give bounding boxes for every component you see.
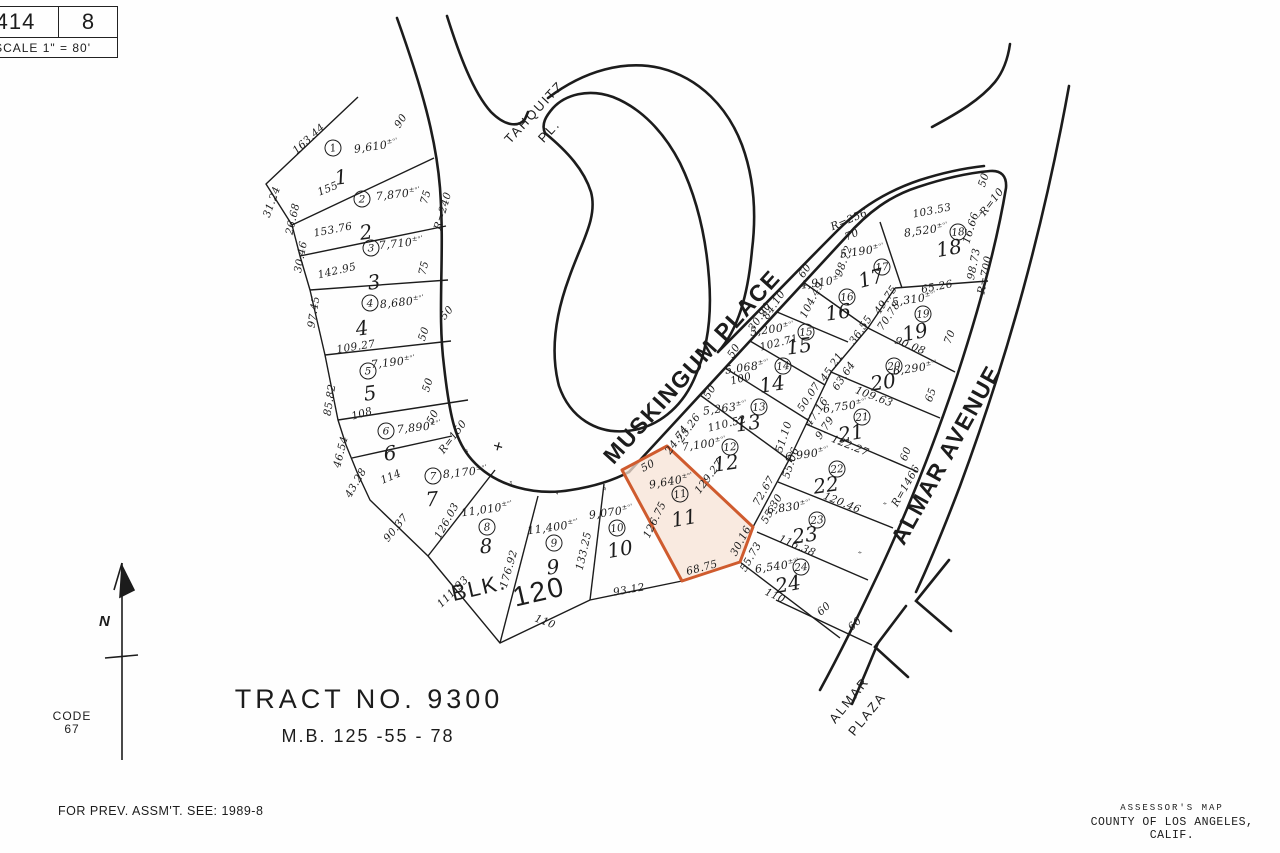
tax-code-area: CODE 67 [44, 710, 100, 736]
lot-number: 6 [382, 440, 398, 466]
north-arrow [105, 563, 138, 760]
code-value: 67 [44, 723, 100, 736]
county-label: COUNTY OF LOS ANGELES, CALIF. [1072, 816, 1272, 842]
north-label: N [99, 613, 110, 630]
lot-number: 18 [934, 234, 963, 262]
lot-number: 8 [479, 533, 494, 558]
road-almar-north-west-edge [932, 44, 1010, 127]
lot-circle-number: 6 [378, 423, 395, 440]
lot-number: 4 [354, 315, 370, 341]
road-tahquitz-east-edge [447, 16, 528, 124]
tract-title: TRACT NO. 9300 [234, 684, 504, 715]
map-book-number: 414 [0, 7, 59, 37]
map-scale-label: SCALE 1" = 80' [0, 38, 117, 57]
map-page-number: 8 [59, 7, 117, 37]
road-almar-plaza-corner-south [875, 606, 908, 677]
lot-circle-number: 4 [362, 295, 379, 312]
tick-mark: ″ [548, 491, 559, 495]
assessor-stamp: ASSESSOR'S MAP COUNTY OF LOS ANGELES, CA… [1072, 803, 1272, 842]
lot-number: 11 [669, 504, 698, 532]
map-book-reference: M.B. 125 -55 - 78 [258, 726, 478, 747]
previous-assessment-note: FOR PREV. ASSM'T. SEE: 1989-8 [58, 804, 263, 818]
lot-number: 14 [758, 370, 787, 397]
assessor-map-label: ASSESSOR'S MAP [1072, 803, 1272, 813]
lot-circle-number: 3 [363, 240, 380, 257]
lot-number: 10 [605, 535, 634, 563]
road-almar-plaza-corner-north [916, 560, 951, 631]
road-loop-outer-north-edge [548, 65, 754, 352]
lot-circle-number: 7 [425, 468, 442, 485]
assessor-map: 119,610±ᵒ'163.4431.2415590227,870±ᵒ'153.… [0, 0, 1280, 853]
map-sheet-header: 414 8 SCALE 1" = 80' [0, 6, 118, 58]
lot-circle-number: 2 [354, 191, 371, 208]
lot-number: 7 [425, 486, 440, 511]
lot-number: 12 [712, 449, 741, 476]
road-almar-east-edge [916, 86, 1069, 592]
road-edges [397, 16, 1069, 704]
lot-number: 16 [824, 298, 853, 325]
